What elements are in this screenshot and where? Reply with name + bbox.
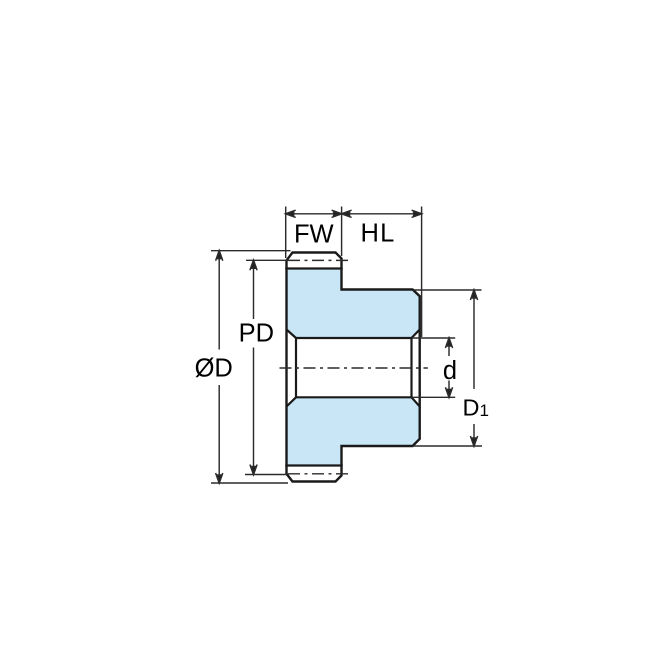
- svg-text:d: d: [443, 357, 457, 385]
- svg-text:FW: FW: [294, 221, 334, 249]
- svg-text:PD: PD: [239, 319, 274, 347]
- svg-text:HL: HL: [361, 220, 396, 248]
- svg-text:ØD: ØD: [195, 354, 233, 382]
